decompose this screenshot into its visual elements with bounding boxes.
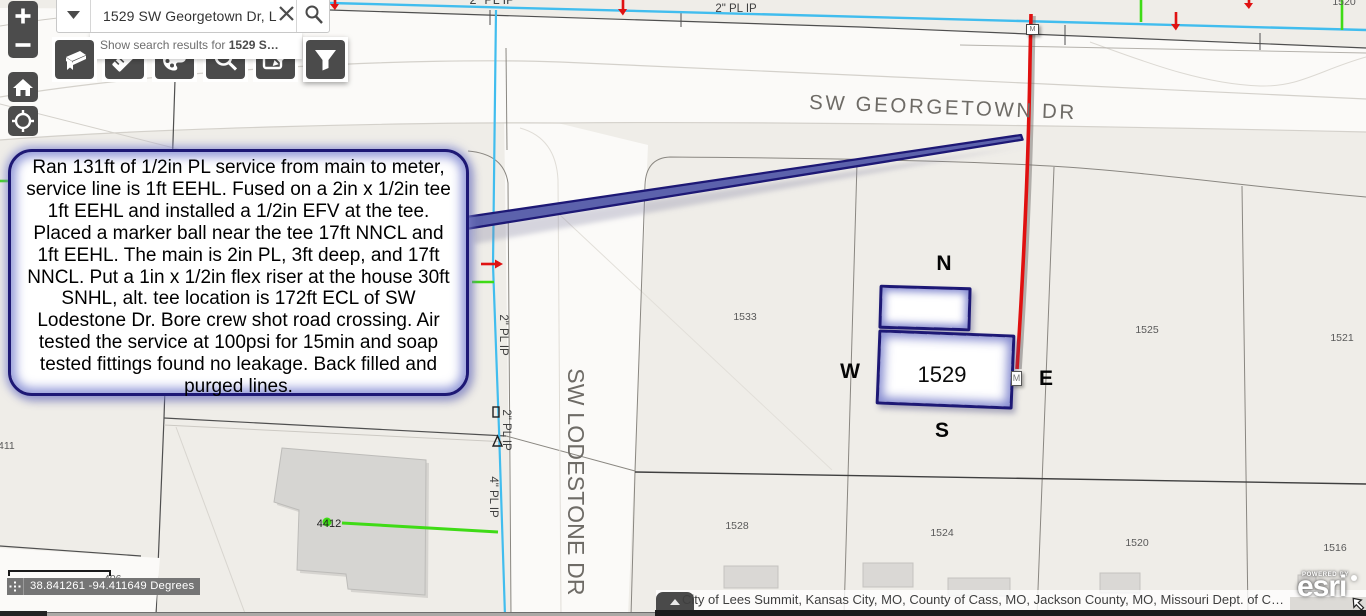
svg-text:N: N	[936, 252, 951, 275]
svg-text:1520: 1520	[1125, 537, 1149, 549]
svg-text:2" PL IP: 2" PL IP	[497, 314, 509, 356]
svg-text:1524: 1524	[930, 527, 954, 539]
svg-text:E: E	[1039, 367, 1053, 390]
svg-text:4" PL IP: 4" PL IP	[487, 476, 499, 518]
svg-text:1516: 1516	[1323, 542, 1347, 554]
svg-text:1520: 1520	[1332, 0, 1356, 8]
svg-text:S: S	[935, 419, 949, 442]
svg-text:2" PL IP: 2" PL IP	[715, 3, 757, 15]
svg-text:1528: 1528	[725, 520, 749, 532]
svg-text:1521: 1521	[1330, 332, 1354, 344]
svg-text:W: W	[840, 360, 860, 383]
svg-text:4412: 4412	[317, 518, 341, 530]
svg-text:1525: 1525	[1135, 324, 1159, 336]
svg-text:1533: 1533	[733, 311, 757, 323]
svg-text:SW LODESTONE DR: SW LODESTONE DR	[563, 368, 589, 596]
svg-text:2" PL IP: 2" PL IP	[470, 0, 515, 7]
